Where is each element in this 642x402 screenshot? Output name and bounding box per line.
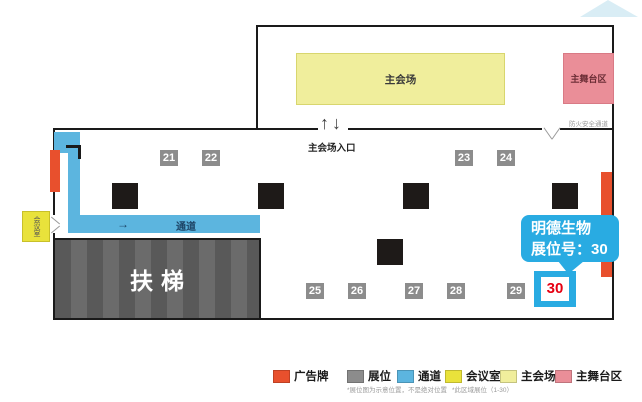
legend-item-main-hall: 主会场: [500, 368, 556, 384]
legend-label: 主会场: [521, 368, 556, 384]
legend-item-stage: 主舞台区: [555, 368, 622, 384]
down-arrow-icon: ↓: [332, 113, 341, 134]
booth-label-24: 24: [497, 150, 515, 166]
billboard-swatch-icon: [273, 370, 290, 383]
meeting-room-area: 会议室: [22, 211, 50, 242]
page-corner-decoration: [580, 0, 638, 17]
booth-label-25: 25: [306, 283, 324, 299]
legend-label: 会议室: [466, 368, 501, 384]
booth-label-29: 29: [507, 283, 525, 299]
legend-label: 展位: [368, 368, 391, 384]
legend-label: 主舞台区: [576, 368, 622, 384]
booth-30-highlight: 30: [534, 271, 576, 307]
door-leaf-icon: [51, 226, 60, 234]
aisle-label: 通道: [176, 218, 196, 233]
door-leaf-icon: [552, 127, 561, 139]
booth-swatch-icon: [347, 370, 364, 383]
pillar: [377, 239, 403, 265]
stage-swatch-icon: [555, 370, 572, 383]
booth-corner-mark: [66, 145, 81, 159]
legend-label: 广告牌: [294, 368, 329, 384]
legend-item-meeting-room: 会议室: [445, 368, 501, 384]
booth-label-23: 23: [455, 150, 473, 166]
booth-label-28: 28: [447, 283, 465, 299]
stage-area: 主舞台区: [563, 53, 614, 104]
callout-booth-number: 展位号：30: [531, 239, 619, 260]
legend-item-billboard: 广告牌: [273, 368, 329, 384]
wall-upper-left: [256, 25, 258, 130]
fire-exit-label: 防火安全通道: [569, 118, 608, 128]
legend-item-aisle: 通道: [397, 368, 441, 384]
wall-mid-c: [560, 128, 612, 130]
up-arrow-icon: ↑: [320, 113, 329, 134]
callout-company: 明德生物: [531, 218, 619, 239]
wall-bottom: [259, 318, 614, 320]
wall-mid-b: [348, 128, 542, 130]
pillar: [552, 183, 578, 209]
main-hall-label: 主会场: [385, 72, 417, 87]
callout-bubble: 明德生物 展位号：30: [521, 215, 619, 262]
door-leaf-icon: [51, 217, 60, 225]
entrance-label: 主会场入口: [308, 140, 356, 154]
pillar: [258, 183, 284, 209]
main-hall-swatch-icon: [500, 370, 517, 383]
exhibition-floor-plan: { "colors": { "billboard": "#E8502D", "b…: [0, 0, 642, 402]
wall-mid-a: [53, 128, 318, 130]
escalator-label: 扶梯: [122, 262, 192, 296]
booth-label-21: 21: [160, 150, 178, 166]
meeting-room-swatch-icon: [445, 370, 462, 383]
escalator-area: 扶梯: [53, 238, 261, 320]
legend-label: 通道: [418, 368, 441, 384]
aisle-swatch-icon: [397, 370, 414, 383]
meeting-room-label: 会议室: [31, 216, 41, 237]
legend-note-1: *展位图为示意位置，不是绝对位置: [347, 384, 447, 394]
booth-label-27: 27: [405, 283, 423, 299]
booth-30-number: 30: [541, 277, 569, 301]
pillar: [403, 183, 429, 209]
aisle-segment: [68, 215, 260, 233]
booth-label-22: 22: [202, 150, 220, 166]
main-hall-area: 主会场: [296, 53, 505, 105]
legend-item-booth: 展位: [347, 368, 391, 384]
pillar: [112, 183, 138, 209]
billboard-left: [50, 150, 60, 192]
stage-label: 主舞台区: [570, 72, 606, 85]
aisle-arrow-icon: →: [117, 217, 129, 231]
wall-top: [256, 25, 614, 27]
legend-note-2: *此区域展位（1-30）: [452, 384, 513, 394]
booth-label-26: 26: [348, 283, 366, 299]
